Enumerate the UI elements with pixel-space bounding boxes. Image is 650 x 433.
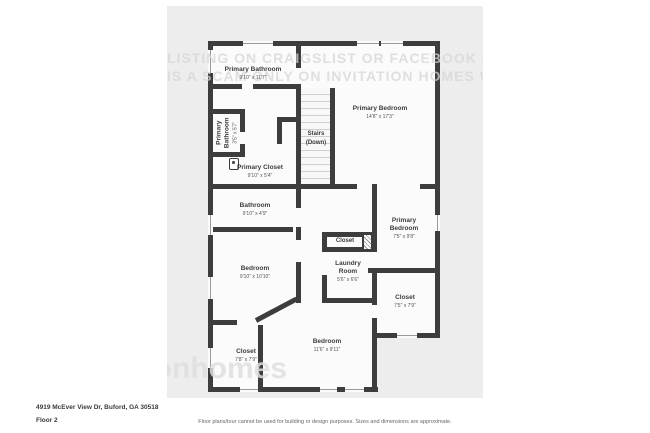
room-dimensions: 5'6" x 6'6"	[328, 277, 368, 283]
wall-segment	[208, 184, 357, 189]
property-address: 4919 McEver View Dr, Buford, GA 30518	[36, 404, 158, 411]
room-dimensions: 14'8" x 17'3"	[335, 114, 425, 120]
room-name: Bedroom	[282, 338, 372, 346]
wall-segment	[208, 320, 237, 325]
disclaimer-text: Floor plans/tour cannot be used for buil…	[0, 419, 650, 425]
window-marker	[357, 41, 379, 46]
room-label-laundry-room: Laundry Room 5'6" x 6'6"	[328, 260, 368, 284]
window-marker	[345, 387, 364, 392]
room-label-primary-bathroom: Primary Bathroom 9'10" x 11'7"	[208, 66, 298, 81]
window-marker	[320, 387, 337, 392]
room-label-bedroom-1: Bedroom 9'10" x 10'10"	[210, 265, 300, 280]
window-marker	[381, 41, 403, 46]
room-name: Bathroom	[210, 202, 300, 210]
room-name: Laundry Room	[328, 260, 368, 276]
room-name: Stairs	[296, 131, 336, 139]
room-label-primary-bedroom-2: Primary Bedroom 7'5" x 9'8"	[384, 217, 424, 241]
room-dimensions: 9'10" x 5'4"	[215, 173, 305, 179]
wall-segment	[420, 184, 440, 189]
window-marker	[208, 215, 213, 235]
room-name: Closet	[385, 294, 425, 302]
room-label-primary-closet: Primary Closet 9'10" x 5'4"	[215, 164, 305, 179]
wall-segment	[253, 84, 301, 89]
room-label-closet-right: Closet 7'5" x 7'9"	[385, 294, 425, 309]
room-dimensions: 9'10" x 11'7"	[208, 75, 298, 81]
wall-segment	[372, 318, 377, 392]
window-marker	[397, 333, 417, 338]
room-name: Primary Bathroom	[208, 66, 298, 74]
room-label-bedroom-2: Bedroom 11'6" x 9'11"	[282, 338, 372, 353]
wall-segment	[277, 122, 282, 144]
room-label-bathroom: Bathroom 9'10" x 4'9"	[210, 202, 300, 217]
room-name: Primary Closet	[215, 164, 305, 172]
window-marker	[243, 41, 273, 46]
wall-segment	[435, 41, 440, 338]
room-dimensions: 7'5" x 9'8"	[384, 234, 424, 240]
room-name: Closet	[325, 238, 365, 246]
room-label-closet-left: Closet 7'8" x 7'9"	[226, 348, 266, 363]
room-label-primary-bathroom-small: Primary Bathroom 3'5" x 5'7"	[202, 110, 252, 156]
wall-segment	[208, 84, 242, 89]
room-label-primary-bedroom: Primary Bedroom 14'8" x 17'3"	[335, 105, 425, 120]
room-name: Primary Bedroom	[384, 217, 424, 233]
window-marker	[435, 215, 440, 231]
room-name: Bedroom	[210, 265, 300, 273]
wall-segment	[296, 227, 301, 240]
wall-segment	[372, 268, 377, 305]
room-dimensions: 7'8" x 7'9"	[226, 357, 266, 363]
room-dimensions: 9'10" x 4'9"	[210, 211, 300, 217]
room-label-stairs: Stairs (Down)	[296, 131, 336, 147]
wall-segment	[323, 298, 377, 303]
room-dimensions: 9'10" x 10'10"	[210, 274, 300, 280]
room-name: Primary Bedroom	[335, 105, 425, 113]
room-name: Closet	[226, 348, 266, 356]
room-label-hall-closet: Closet	[325, 238, 365, 246]
anti-scam-watermark-line-1: LISTING ON CRAIGSLIST OR FACEBOOK MARKET…	[167, 50, 483, 66]
window-marker	[240, 387, 258, 392]
room-name: Primary Bathroom	[215, 108, 231, 158]
wall-segment	[208, 227, 293, 232]
room-dimensions: 11'6" x 9'11"	[282, 347, 372, 353]
floor-plan-page: { "page": { "canvas_color": "#ededed", "…	[0, 0, 650, 433]
room-dimensions: 7'5" x 7'9"	[385, 303, 425, 309]
wall-segment	[368, 268, 440, 273]
room-dimensions: 3'5" x 5'7"	[233, 108, 239, 158]
stairs-direction: (Down)	[296, 140, 336, 148]
